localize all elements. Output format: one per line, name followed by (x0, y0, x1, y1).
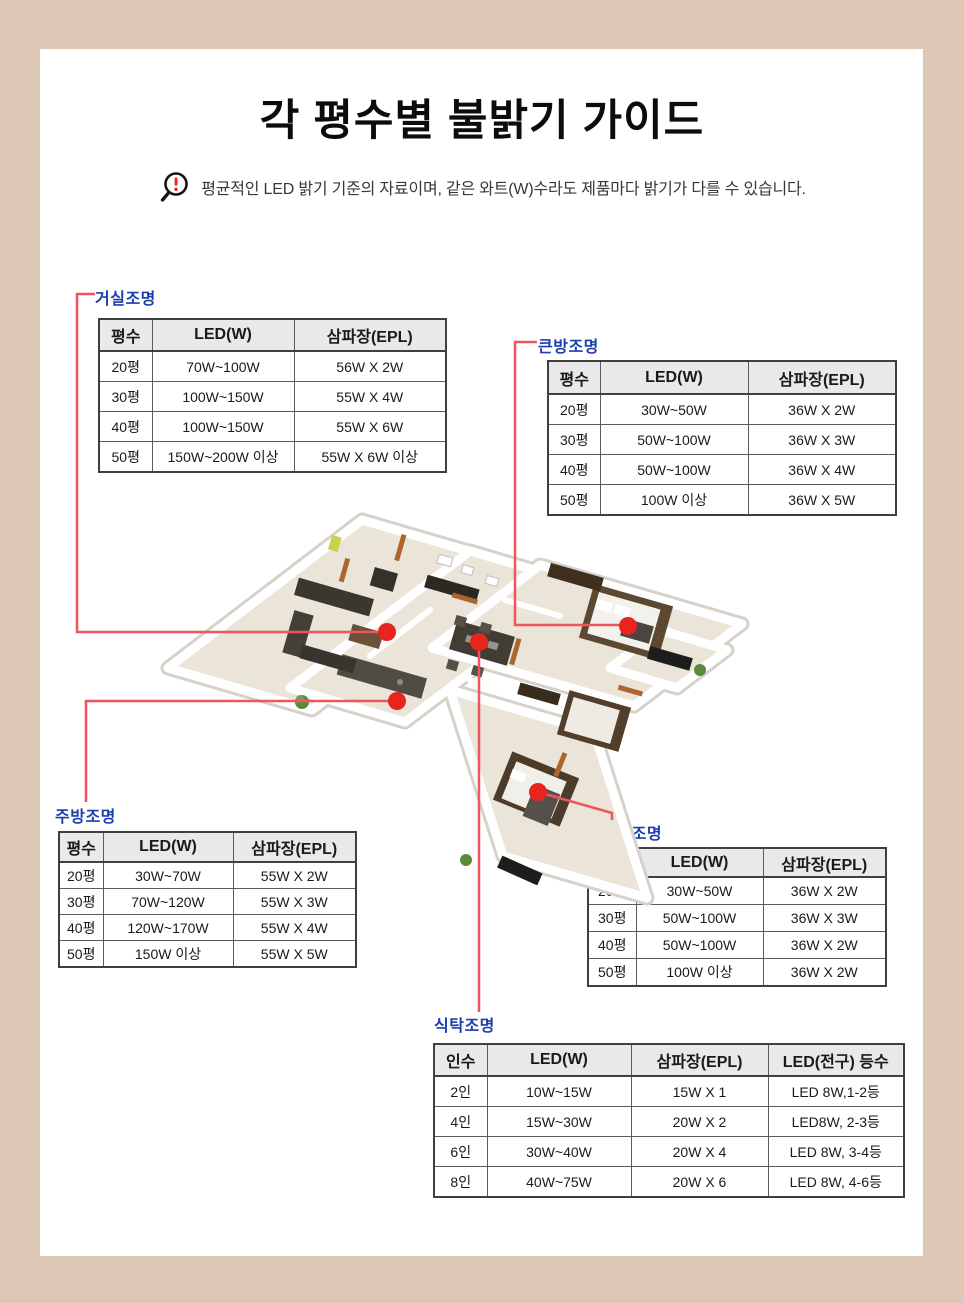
table-cell: 20W X 6 (631, 1167, 768, 1198)
magnifier-exclamation-icon (158, 170, 192, 204)
table-cell: 50W~100W (600, 425, 748, 455)
table-cell: 120W~170W (103, 915, 233, 941)
table-cell: 55W X 3W (233, 889, 356, 915)
table-cell: 55W X 4W (233, 915, 356, 941)
table-cell: 100W 이상 (600, 485, 748, 516)
living-room-table: 평수LED(W)삼파장(EPL)20평70W~100W56W X 2W30평10… (98, 318, 447, 473)
table-cell: 15W~30W (487, 1107, 631, 1137)
column-header: 삼파장(EPL) (294, 319, 446, 351)
table-row: 40평50W~100W36W X 2W (588, 932, 886, 959)
dining-table-table: 인수LED(W)삼파장(EPL)LED(전구) 등수2인10W~15W15W X… (433, 1043, 905, 1198)
column-header: 평수 (548, 361, 600, 394)
table-cell: 40평 (59, 915, 103, 941)
table-cell: LED 8W, 3-4등 (768, 1137, 904, 1167)
table-cell: 20W X 2 (631, 1107, 768, 1137)
table-cell: 50평 (588, 959, 636, 987)
table-cell: 40평 (548, 455, 600, 485)
table-cell: 55W X 6W (294, 412, 446, 442)
table-cell: 2인 (434, 1076, 487, 1107)
table-row: 8인40W~75W20W X 6LED 8W, 4-6등 (434, 1167, 904, 1198)
table-row: 20평70W~100W56W X 2W (99, 351, 446, 382)
table-cell: 150W 이상 (103, 941, 233, 968)
table-cell: 20평 (548, 394, 600, 425)
table-cell: 55W X 2W (233, 862, 356, 889)
table-cell: 56W X 2W (294, 351, 446, 382)
table-row: 50평150W 이상55W X 5W (59, 941, 356, 968)
table-cell: 100W 이상 (636, 959, 763, 987)
table-cell: 8인 (434, 1167, 487, 1198)
table-row: 40평100W~150W55W X 6W (99, 412, 446, 442)
table-cell: 40W~75W (487, 1167, 631, 1198)
table-cell: 50W~100W (600, 455, 748, 485)
table-cell: 4인 (434, 1107, 487, 1137)
table-cell: 70W~120W (103, 889, 233, 915)
small-room-table: 평수LED(W)삼파장(EPL)20평30W~50W36W X 2W30평50W… (587, 847, 887, 987)
table-cell: 20평 (99, 351, 152, 382)
column-header: LED(W) (600, 361, 748, 394)
table-cell: 55W X 6W 이상 (294, 442, 446, 473)
label-kitchen: 주방조명 (55, 803, 116, 827)
table-cell: 30평 (548, 425, 600, 455)
table-cell: 36W X 4W (748, 455, 896, 485)
table-row: 2인10W~15W15W X 1LED 8W,1-2등 (434, 1076, 904, 1107)
notice-text: 평균적인 LED 밝기 기준의 자료이며, 같은 와트(W)수라도 제품마다 밝… (201, 175, 806, 199)
table-cell: 36W X 2W (763, 959, 886, 987)
table-row: 40평120W~170W55W X 4W (59, 915, 356, 941)
table-row: 20평30W~50W36W X 2W (548, 394, 896, 425)
column-header: LED(W) (636, 848, 763, 877)
table-cell: 50W~100W (636, 932, 763, 959)
table-row: 50평100W 이상36W X 5W (548, 485, 896, 516)
column-header: LED(전구) 등수 (768, 1044, 904, 1076)
column-header: 삼파장(EPL) (631, 1044, 768, 1076)
column-header: 인수 (434, 1044, 487, 1076)
column-header: 평수 (59, 832, 103, 862)
table-row: 30평70W~120W55W X 3W (59, 889, 356, 915)
table-cell: 36W X 2W (763, 932, 886, 959)
table-row: 30평50W~100W36W X 3W (548, 425, 896, 455)
table-row: 20평30W~70W55W X 2W (59, 862, 356, 889)
kitchen-table: 평수LED(W)삼파장(EPL)20평30W~70W55W X 2W30평70W… (58, 831, 357, 968)
table-cell: 30평 (99, 382, 152, 412)
label-small-room: 작은방조명 (586, 820, 662, 844)
table-cell: 20W X 4 (631, 1137, 768, 1167)
table-cell: 20평 (59, 862, 103, 889)
table-cell: 20평 (588, 877, 636, 905)
table-cell: 30W~40W (487, 1137, 631, 1167)
table-cell: 30W~50W (636, 877, 763, 905)
table-row: 30평50W~100W36W X 3W (588, 905, 886, 932)
column-header: LED(W) (487, 1044, 631, 1076)
column-header: 평수 (99, 319, 152, 351)
table-cell: 55W X 4W (294, 382, 446, 412)
table-cell: 36W X 3W (763, 905, 886, 932)
table-cell: 30W~50W (600, 394, 748, 425)
table-row: 4인15W~30W20W X 2LED8W, 2-3등 (434, 1107, 904, 1137)
table-row: 30평100W~150W55W X 4W (99, 382, 446, 412)
table-cell: 55W X 5W (233, 941, 356, 968)
label-dining: 식탁조명 (434, 1012, 495, 1036)
table-row: 50평100W 이상36W X 2W (588, 959, 886, 987)
table-cell: 30W~70W (103, 862, 233, 889)
table-cell: 10W~15W (487, 1076, 631, 1107)
table-cell: 50평 (548, 485, 600, 516)
table-cell: LED 8W,1-2등 (768, 1076, 904, 1107)
table-cell: 100W~150W (152, 382, 294, 412)
table-cell: 36W X 2W (763, 877, 886, 905)
table-cell: 36W X 3W (748, 425, 896, 455)
table-cell: 36W X 5W (748, 485, 896, 516)
column-header: 평수 (588, 848, 636, 877)
table-cell: 36W X 2W (748, 394, 896, 425)
table-row: 20평30W~50W36W X 2W (588, 877, 886, 905)
label-living-room: 거실조명 (95, 285, 156, 309)
table-cell: 30평 (59, 889, 103, 915)
big-room-table: 평수LED(W)삼파장(EPL)20평30W~50W36W X 2W30평50W… (547, 360, 897, 516)
column-header: 삼파장(EPL) (763, 848, 886, 877)
table-cell: 50W~100W (636, 905, 763, 932)
page-title: 각 평수별 불밝기 가이드 (0, 86, 964, 148)
table-cell: 40평 (588, 932, 636, 959)
table-cell: 50평 (59, 941, 103, 968)
table-cell: 50평 (99, 442, 152, 473)
table-cell: 6인 (434, 1137, 487, 1167)
column-header: 삼파장(EPL) (233, 832, 356, 862)
table-cell: 100W~150W (152, 412, 294, 442)
column-header: LED(W) (152, 319, 294, 351)
column-header: LED(W) (103, 832, 233, 862)
table-cell: 40평 (99, 412, 152, 442)
column-header: 삼파장(EPL) (748, 361, 896, 394)
table-cell: LED 8W, 4-6등 (768, 1167, 904, 1198)
table-cell: 150W~200W 이상 (152, 442, 294, 473)
label-big-room: 큰방조명 (538, 333, 599, 357)
table-row: 50평150W~200W 이상55W X 6W 이상 (99, 442, 446, 473)
table-cell: 15W X 1 (631, 1076, 768, 1107)
table-row: 40평50W~100W36W X 4W (548, 455, 896, 485)
notice: 평균적인 LED 밝기 기준의 자료이며, 같은 와트(W)수라도 제품마다 밝… (0, 170, 964, 204)
table-cell: 30평 (588, 905, 636, 932)
table-cell: LED8W, 2-3등 (768, 1107, 904, 1137)
table-row: 6인30W~40W20W X 4LED 8W, 3-4등 (434, 1137, 904, 1167)
table-cell: 70W~100W (152, 351, 294, 382)
